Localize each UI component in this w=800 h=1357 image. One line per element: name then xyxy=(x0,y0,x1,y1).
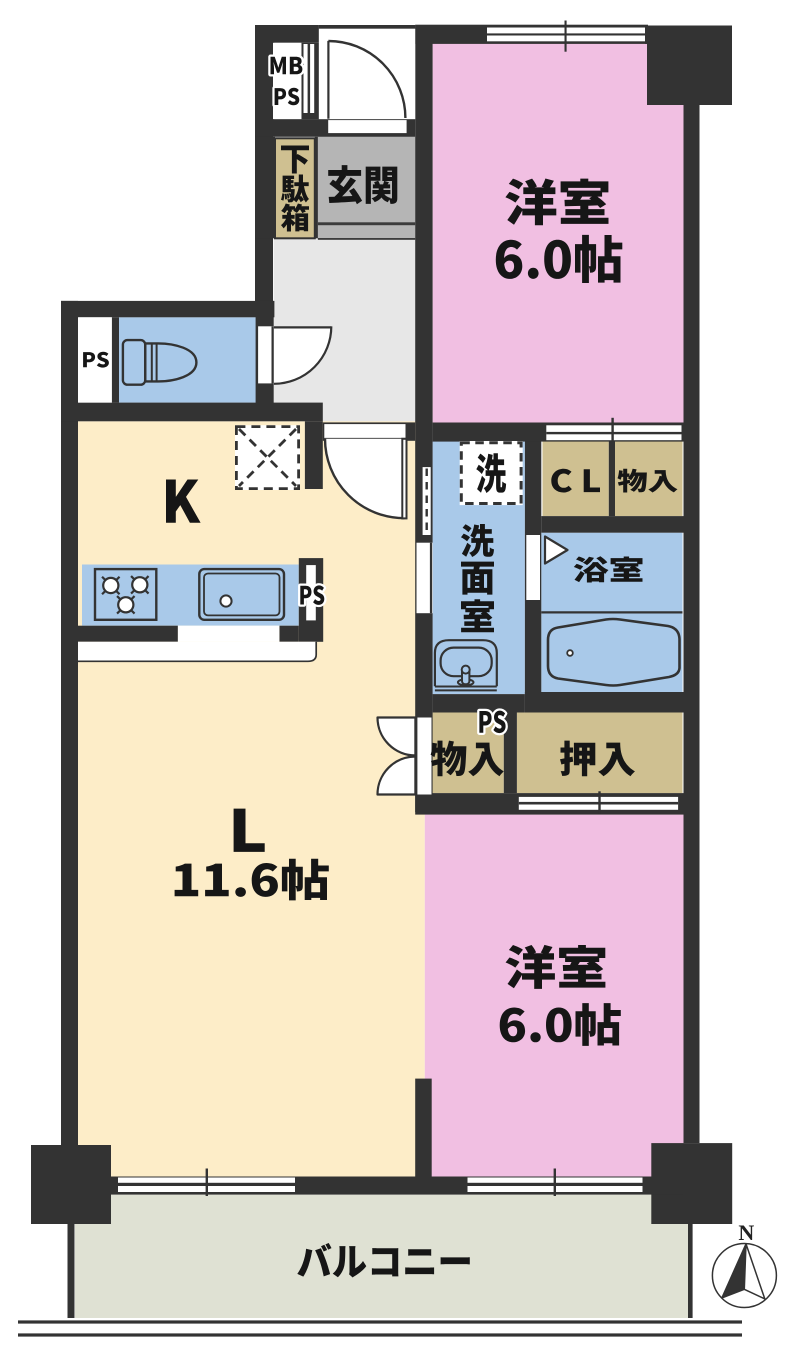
svg-text:N: N xyxy=(738,1220,754,1245)
